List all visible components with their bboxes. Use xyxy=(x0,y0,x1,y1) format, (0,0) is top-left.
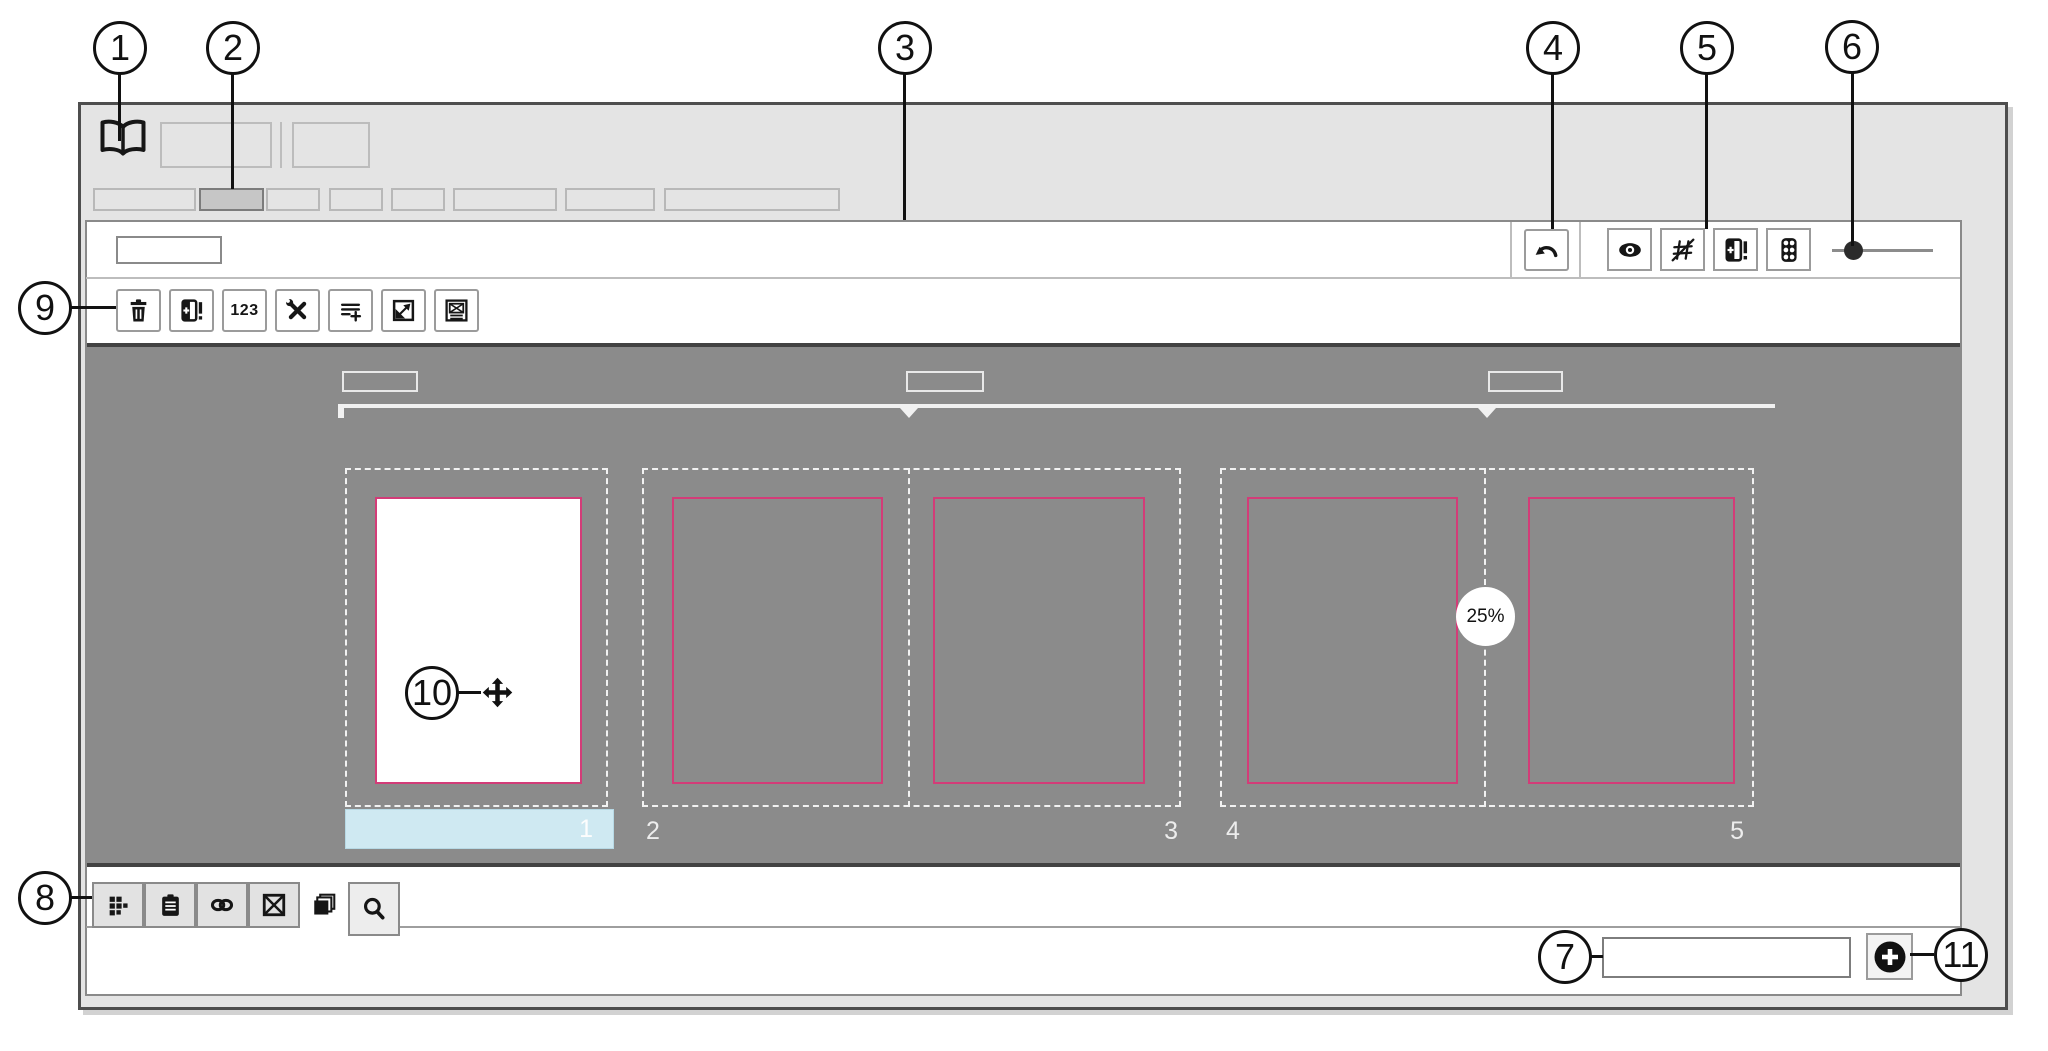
document-tab-8[interactable] xyxy=(664,188,840,211)
document-tab-7[interactable] xyxy=(565,188,655,211)
undo-icon xyxy=(1534,239,1560,261)
tab-links[interactable] xyxy=(196,882,248,928)
grid-overlay-button[interactable] xyxy=(1660,228,1705,271)
document-tab-4[interactable] xyxy=(329,188,383,211)
callout-8: 8 xyxy=(18,871,72,925)
numbering-button[interactable]: 123 xyxy=(222,289,267,332)
add-page-button[interactable] xyxy=(169,289,214,332)
ruler-marker-triangle-2 xyxy=(1478,408,1496,418)
tab-clipboard[interactable] xyxy=(144,882,196,928)
grid-icon xyxy=(106,893,131,918)
resize-icon xyxy=(391,298,416,323)
page-number-4: 4 xyxy=(1226,817,1240,846)
page-thumbnail-2[interactable] xyxy=(672,497,883,784)
callout-3: 3 xyxy=(878,21,932,75)
delete-page-button[interactable] xyxy=(116,289,161,332)
ruler-start-tick xyxy=(338,404,344,418)
selected-page-bar[interactable]: 1 xyxy=(345,809,614,849)
move-cursor-icon xyxy=(481,676,514,709)
callout-5: 5 xyxy=(1680,21,1734,75)
callout-11: 11 xyxy=(1934,928,1988,982)
callout-line-7 xyxy=(1591,955,1603,958)
add-page-icon xyxy=(179,298,204,323)
header-separator xyxy=(280,122,282,168)
tools-icon xyxy=(285,298,310,323)
document-tab-3[interactable] xyxy=(266,188,320,211)
callout-5-number: 5 xyxy=(1697,27,1717,69)
traffic-light-icon xyxy=(1776,237,1802,263)
trash-icon xyxy=(126,298,151,323)
callout-3-number: 3 xyxy=(895,27,915,69)
callout-line-4 xyxy=(1551,74,1554,229)
page-number-2: 2 xyxy=(646,817,660,846)
topbar-separator-2 xyxy=(1579,222,1581,277)
grid-slash-icon xyxy=(1670,237,1696,263)
book-icon xyxy=(98,118,148,162)
section-marker-1[interactable] xyxy=(342,371,418,392)
undo-button[interactable] xyxy=(1524,229,1569,271)
image-frame-button[interactable] xyxy=(434,289,479,332)
tab-placeholder[interactable] xyxy=(248,882,300,928)
page-number-5: 5 xyxy=(1696,817,1744,846)
callout-8-number: 8 xyxy=(35,877,55,919)
section-marker-3[interactable] xyxy=(1488,371,1563,392)
callout-10: 10 xyxy=(405,666,459,720)
tab-search[interactable] xyxy=(348,882,400,936)
tab-pages[interactable] xyxy=(92,882,144,928)
callout-line-6 xyxy=(1851,73,1854,246)
section-marker-2[interactable] xyxy=(906,371,984,392)
document-tab-1[interactable] xyxy=(93,188,196,211)
document-tab-5[interactable] xyxy=(391,188,445,211)
header-placeholder-button-2[interactable] xyxy=(292,122,370,168)
numbering-icon: 123 xyxy=(230,302,258,320)
callout-2-number: 2 xyxy=(223,27,243,69)
spread-2-spine xyxy=(908,468,910,807)
callout-7-number: 7 xyxy=(1555,936,1575,978)
page-number-1: 1 xyxy=(579,815,593,844)
tab-layers[interactable] xyxy=(300,882,348,928)
page-thumbnail-4[interactable] xyxy=(1247,497,1458,784)
callout-line-5 xyxy=(1705,74,1708,229)
page-thumbnail-3[interactable] xyxy=(933,497,1145,784)
clipboard-icon xyxy=(158,893,183,918)
status-button[interactable] xyxy=(1766,228,1811,271)
header-placeholder-button-1[interactable] xyxy=(160,122,272,168)
callout-2: 2 xyxy=(206,21,260,75)
layers-icon xyxy=(311,892,337,918)
add-list-icon xyxy=(338,298,363,323)
image-frame-icon xyxy=(444,298,469,323)
callout-9-number: 9 xyxy=(35,287,55,329)
ruler-line xyxy=(338,404,1775,408)
document-tab-2-active[interactable] xyxy=(199,188,264,211)
document-tab-6[interactable] xyxy=(453,188,557,211)
callout-6-number: 6 xyxy=(1842,26,1862,68)
callout-7: 7 xyxy=(1538,930,1592,984)
callout-4: 4 xyxy=(1526,21,1580,75)
header-input[interactable] xyxy=(116,236,222,264)
link-icon xyxy=(209,892,235,918)
callout-line-10 xyxy=(458,691,481,694)
page-number-3: 3 xyxy=(1130,817,1178,846)
callout-10-number: 10 xyxy=(412,672,452,714)
callout-line-8 xyxy=(71,896,92,899)
page-thumbnail-5[interactable] xyxy=(1528,497,1735,784)
preview-button[interactable] xyxy=(1607,228,1652,271)
callout-1-number: 1 xyxy=(110,27,130,69)
topbar-divider xyxy=(86,277,1960,279)
zoom-badge: 25% xyxy=(1456,587,1515,646)
placeholder-icon xyxy=(261,892,287,918)
callout-line-2 xyxy=(231,74,234,189)
page-thumbnail-1[interactable] xyxy=(375,497,582,784)
resize-button[interactable] xyxy=(381,289,426,332)
callout-line-3 xyxy=(903,74,906,220)
ruler-marker-triangle-1 xyxy=(900,408,918,418)
callout-11-number: 11 xyxy=(1942,934,1979,976)
page-options-icon xyxy=(1723,237,1749,263)
callout-line-11 xyxy=(1910,953,1934,956)
add-button[interactable] xyxy=(1866,933,1913,980)
callout-6: 6 xyxy=(1825,20,1879,74)
callout-line-9 xyxy=(71,306,116,309)
search-icon xyxy=(361,896,387,922)
topbar-separator-1 xyxy=(1510,222,1512,277)
diagram-stage: 123 xyxy=(0,0,2048,1051)
callout-1: 1 xyxy=(93,21,147,75)
plus-circle-icon xyxy=(1872,939,1908,975)
callout-4-number: 4 xyxy=(1543,27,1563,69)
footer-input[interactable] xyxy=(1602,937,1851,978)
callout-line-1 xyxy=(118,74,121,141)
eye-icon xyxy=(1617,237,1643,263)
callout-9: 9 xyxy=(18,281,72,335)
add-list-button[interactable] xyxy=(328,289,373,332)
zoom-badge-value: 25% xyxy=(1466,606,1504,628)
page-options-button[interactable] xyxy=(1713,228,1758,271)
tools-button[interactable] xyxy=(275,289,320,332)
